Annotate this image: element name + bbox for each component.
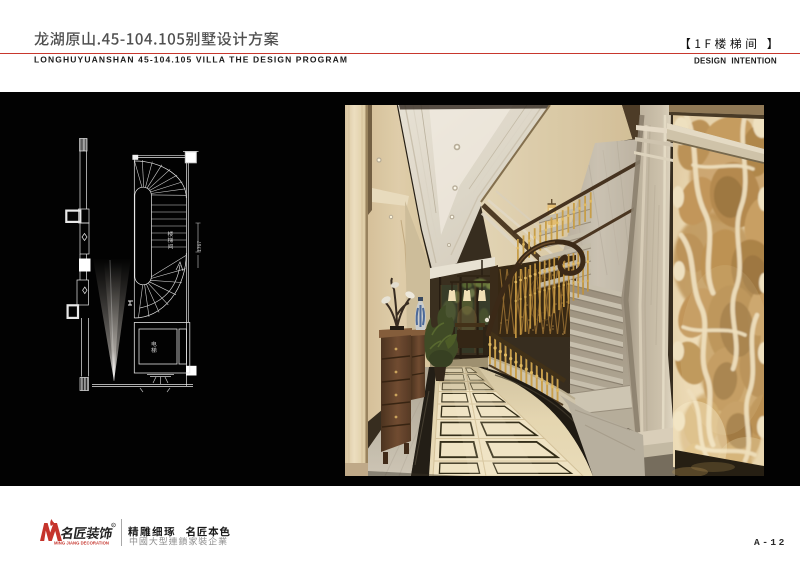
svg-text:MING JIANG DECORATION: MING JIANG DECORATION xyxy=(54,541,109,546)
svg-text:R: R xyxy=(112,524,115,528)
svg-text:A-12: A-12 xyxy=(754,537,787,548)
